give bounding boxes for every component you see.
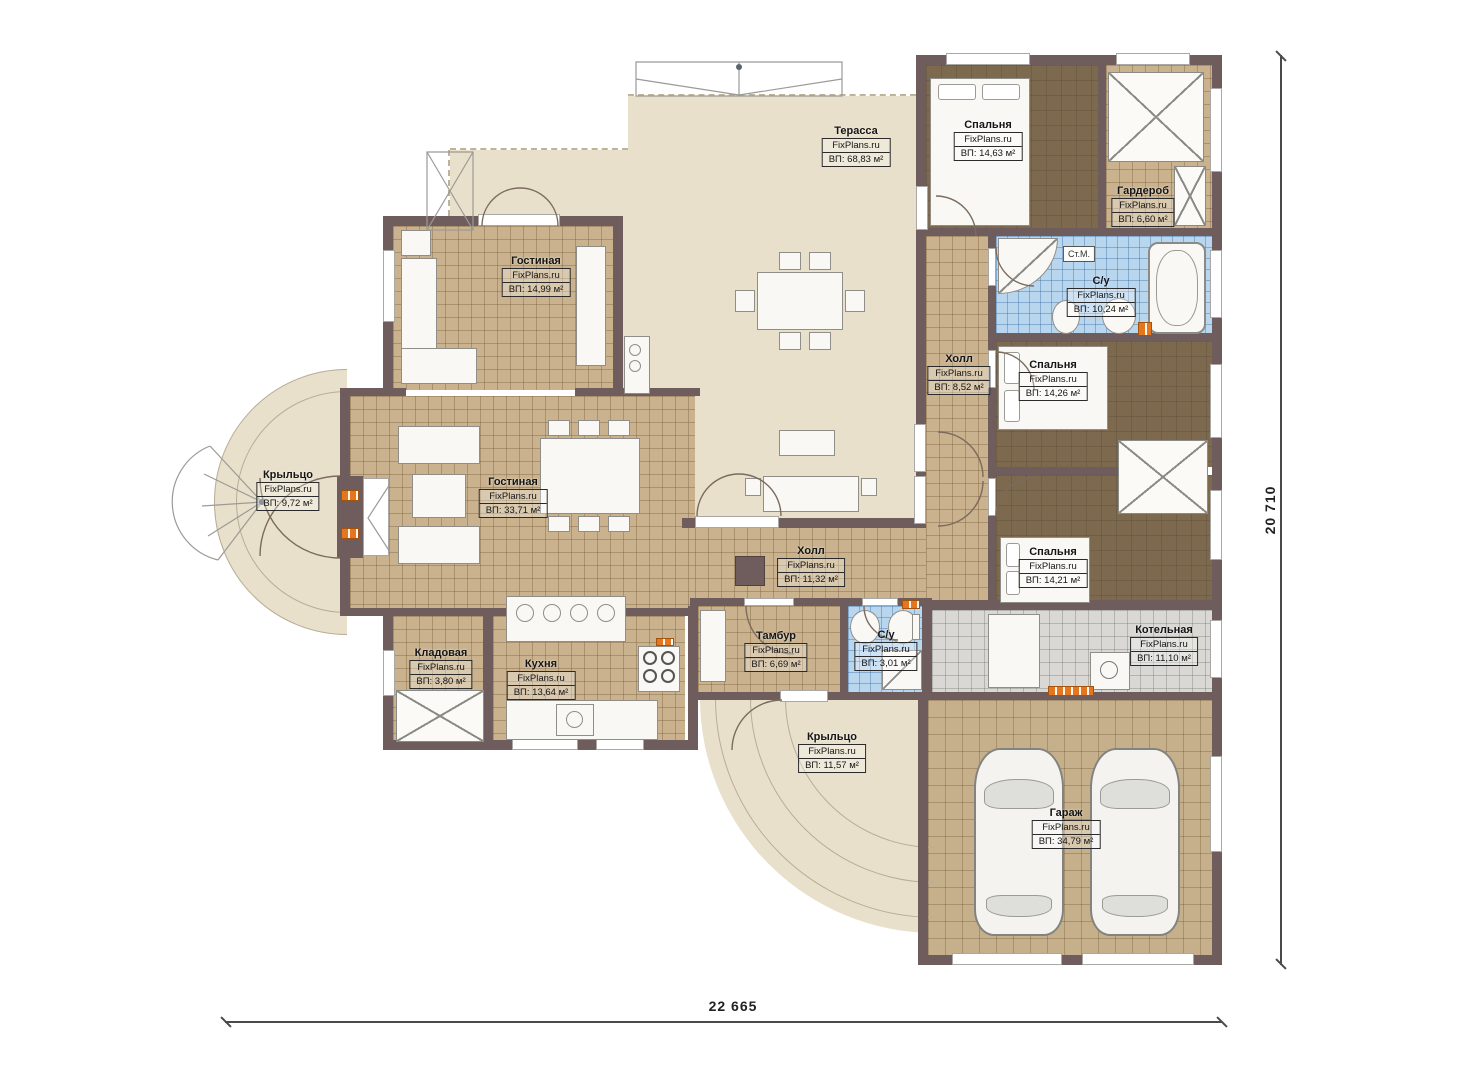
room-area: ВП: 14,26 м²	[1020, 387, 1087, 400]
chair-icon	[809, 332, 831, 350]
window	[1210, 364, 1222, 438]
radiator-icon	[1048, 686, 1094, 696]
door-sill	[914, 424, 926, 472]
dining-table-icon	[540, 438, 640, 514]
window	[383, 250, 395, 322]
washing-machine-label: Ст.М.	[1063, 246, 1095, 262]
wall-segment	[996, 333, 1212, 341]
burner-icon	[661, 669, 675, 683]
cabinet-icon	[576, 246, 606, 366]
pillow-icon	[982, 84, 1020, 100]
room-name: Холл	[777, 545, 845, 557]
room-name: Спальня	[1019, 546, 1088, 558]
wall-segment	[926, 228, 1212, 236]
side-table-icon	[745, 478, 761, 496]
stool-icon	[543, 604, 561, 622]
watermark: FixPlans.ru	[855, 643, 916, 657]
dimension-width-label: 22 665	[709, 998, 758, 1014]
room-label-bedroom-2: Спальня FixPlans.ru ВП: 14,26 м²	[1019, 359, 1088, 401]
room-info-box: FixPlans.ru ВП: 14,63 м²	[954, 132, 1023, 161]
room-area: ВП: 11,10 м²	[1131, 652, 1197, 665]
room-info-box: FixPlans.ru ВП: 11,57 м²	[798, 744, 866, 773]
wardrobe-icon	[1108, 72, 1204, 162]
watermark: FixPlans.ru	[1131, 638, 1197, 652]
chair-icon	[578, 516, 600, 532]
sofa-icon	[401, 348, 477, 384]
wall-segment	[988, 236, 996, 606]
room-area: ВП: 9,72 м²	[257, 497, 318, 510]
chair-icon	[578, 420, 600, 436]
room-label-hall-corridor: Холл FixPlans.ru ВП: 11,32 м²	[777, 545, 845, 587]
window	[1210, 490, 1222, 560]
chair-icon	[735, 290, 755, 312]
floor-plan: Терасса FixPlans.ru ВП: 68,83 м² Спальня…	[0, 0, 1474, 1080]
door-sill	[695, 516, 779, 528]
room-label-kitchen: Кухня FixPlans.ru ВП: 13,64 м²	[507, 658, 576, 700]
window	[1210, 250, 1222, 318]
door-sill	[916, 186, 928, 230]
wall-segment	[340, 556, 350, 616]
room-name: Крыльцо	[256, 469, 319, 481]
sofa-icon	[398, 526, 480, 564]
room-label-living-small: Гостиная FixPlans.ru ВП: 14,99 м²	[502, 255, 571, 297]
room-name: С/у	[1067, 275, 1136, 287]
radiator-icon	[656, 638, 674, 646]
radiator-icon	[341, 490, 359, 501]
room-label-boiler: Котельная FixPlans.ru ВП: 11,10 м²	[1130, 624, 1198, 666]
wall-segment	[1098, 65, 1106, 228]
window	[1210, 620, 1222, 678]
watermark: FixPlans.ru	[1020, 560, 1087, 574]
radiator-icon	[341, 528, 359, 539]
room-label-wc-small: С/у FixPlans.ru ВП: 3,01 м²	[854, 629, 917, 671]
sink-icon	[629, 344, 641, 356]
watermark: FixPlans.ru	[778, 559, 844, 573]
dining-table-icon	[757, 272, 843, 330]
terrace-edge	[448, 150, 450, 226]
wall-segment	[918, 700, 928, 965]
watermark: FixPlans.ru	[1068, 289, 1135, 303]
room-label-garage: Гараж FixPlans.ru ВП: 34,79 м²	[1032, 807, 1101, 849]
door-sill	[988, 478, 996, 516]
room-name: Гараж	[1032, 807, 1101, 819]
room-area: ВП: 3,01 м²	[855, 657, 916, 670]
room-info-box: FixPlans.ru ВП: 13,64 м²	[507, 671, 576, 700]
room-label-bedroom-3: Спальня FixPlans.ru ВП: 14,21 м²	[1019, 546, 1088, 588]
room-name: Тамбур	[744, 630, 807, 642]
dimension-line-vertical	[1280, 55, 1282, 965]
wall-segment	[340, 388, 350, 483]
watermark: FixPlans.ru	[745, 644, 806, 658]
wall-segment	[922, 598, 932, 700]
watermark: FixPlans.ru	[410, 661, 471, 675]
dimension-height-label: 20 710	[1262, 486, 1278, 535]
watermark: FixPlans.ru	[955, 133, 1022, 147]
watermark: FixPlans.ru	[1033, 821, 1100, 835]
stool-icon	[516, 604, 534, 622]
room-info-box: FixPlans.ru ВП: 10,24 м²	[1067, 288, 1136, 317]
room-name: Кладовая	[409, 647, 472, 659]
chair-icon	[779, 252, 801, 270]
chair-icon	[548, 516, 570, 532]
watermark: FixPlans.ru	[508, 672, 575, 686]
pillow-icon	[1004, 390, 1020, 422]
room-name: С/у	[854, 629, 917, 641]
wardrobe-icon	[1118, 440, 1208, 514]
door-sill	[478, 214, 560, 226]
room-label-storage: Кладовая FixPlans.ru ВП: 3,80 м²	[409, 647, 472, 689]
burner-icon	[643, 669, 657, 683]
watermark: FixPlans.ru	[503, 269, 570, 283]
room-label-porch-bottom: Крыльцо FixPlans.ru ВП: 11,57 м²	[798, 731, 866, 773]
wall-segment	[483, 616, 493, 740]
chair-icon	[608, 516, 630, 532]
coffee-table-icon	[779, 430, 835, 456]
room-info-box: FixPlans.ru ВП: 11,10 м²	[1130, 637, 1198, 666]
radiator-icon	[902, 600, 920, 609]
side-table-icon	[861, 478, 877, 496]
room-label-bedroom-1: Спальня FixPlans.ru ВП: 14,63 м²	[954, 119, 1023, 161]
room-name: Холл	[927, 353, 990, 365]
boiler-dial-icon	[1100, 661, 1118, 679]
dimension-line-horizontal	[225, 1021, 1222, 1023]
room-area: ВП: 13,64 м²	[508, 686, 575, 699]
room-name: Гардероб	[1111, 185, 1174, 197]
room-area: ВП: 10,24 м²	[1068, 303, 1135, 316]
room-area: ВП: 14,99 м²	[503, 283, 570, 296]
room-info-box: FixPlans.ru ВП: 14,21 м²	[1019, 559, 1088, 588]
room-label-terrace: Терасса FixPlans.ru ВП: 68,83 м²	[822, 125, 891, 167]
burner-icon	[661, 651, 675, 665]
coffee-table-icon	[412, 474, 466, 518]
room-info-box: FixPlans.ru ВП: 6,60 м²	[1111, 198, 1174, 227]
pillow-icon	[938, 84, 976, 100]
door-sill	[862, 598, 898, 606]
window	[1210, 88, 1222, 172]
watermark: FixPlans.ru	[799, 745, 865, 759]
bay-window	[363, 478, 389, 556]
watermark: FixPlans.ru	[1020, 373, 1087, 387]
door-sill	[744, 598, 794, 606]
room-info-box: FixPlans.ru ВП: 6,69 м²	[744, 643, 807, 672]
room-info-box: FixPlans.ru ВП: 11,32 м²	[777, 558, 845, 587]
wall-segment	[688, 606, 698, 750]
room-info-box: FixPlans.ru ВП: 68,83 м²	[822, 138, 891, 167]
entry-door-sill	[780, 690, 828, 702]
room-name: Спальня	[954, 119, 1023, 131]
room-label-living-main: Гостиная FixPlans.ru ВП: 33,71 м²	[479, 476, 548, 518]
room-name: Гостиная	[502, 255, 571, 267]
room-info-box: FixPlans.ru ВП: 14,26 м²	[1019, 372, 1088, 401]
watermark: FixPlans.ru	[257, 483, 318, 497]
room-info-box: FixPlans.ru ВП: 33,71 м²	[479, 489, 548, 518]
sofa-icon	[763, 476, 859, 512]
chair-icon	[608, 420, 630, 436]
room-label-bathroom: С/у FixPlans.ru ВП: 10,24 м²	[1067, 275, 1136, 317]
room-label-porch-left: Крыльцо FixPlans.ru ВП: 9,72 м²	[256, 469, 319, 511]
burner-icon	[643, 651, 657, 665]
room-info-box: FixPlans.ru ВП: 34,79 м²	[1032, 820, 1101, 849]
cabinet-icon	[988, 614, 1040, 688]
watermark: FixPlans.ru	[823, 139, 890, 153]
wall-segment	[778, 518, 926, 528]
watermark: FixPlans.ru	[1112, 199, 1173, 213]
room-info-box: FixPlans.ru ВП: 9,72 м²	[256, 482, 319, 511]
garage-door	[952, 953, 1062, 965]
room-area: ВП: 11,32 м²	[778, 573, 844, 586]
terrace-edge	[450, 148, 628, 150]
closet-icon	[700, 610, 726, 682]
room-area: ВП: 3,80 м²	[410, 675, 471, 688]
car-icon	[1090, 748, 1180, 936]
sofa-icon	[401, 258, 437, 354]
room-area: ВП: 8,52 м²	[928, 381, 989, 394]
bathtub-icon	[1148, 242, 1206, 334]
window	[1210, 756, 1222, 852]
room-area: ВП: 6,60 м²	[1112, 213, 1173, 226]
room-name: Котельная	[1130, 624, 1198, 636]
door-sill	[914, 476, 926, 524]
porch-door-post	[337, 476, 363, 558]
garage-door	[1082, 953, 1194, 965]
room-area: ВП: 34,79 м²	[1033, 835, 1100, 848]
sofa-icon	[398, 426, 480, 464]
window	[946, 53, 1030, 65]
room-area: ВП: 68,83 м²	[823, 153, 890, 166]
room-label-hall-vertical: Холл FixPlans.ru ВП: 8,52 м²	[927, 353, 990, 395]
room-name: Крыльцо	[798, 731, 866, 743]
room-area: ВП: 33,71 м²	[480, 504, 547, 517]
wall-segment	[613, 216, 623, 396]
side-table-icon	[401, 230, 431, 256]
wall-segment	[996, 467, 1118, 475]
room-name: Терасса	[822, 125, 891, 137]
chair-icon	[809, 252, 831, 270]
chair-icon	[845, 290, 865, 312]
room-area: ВП: 14,63 м²	[955, 147, 1022, 160]
stool-icon	[597, 604, 615, 622]
room-info-box: FixPlans.ru ВП: 14,99 м²	[502, 268, 571, 297]
wardrobe-icon	[1174, 166, 1206, 226]
room-area: ВП: 11,57 м²	[799, 759, 865, 772]
room-area: ВП: 6,69 м²	[745, 658, 806, 671]
stool-icon	[570, 604, 588, 622]
room-name: Гостиная	[479, 476, 548, 488]
shelving-icon	[396, 690, 484, 742]
chair-icon	[548, 420, 570, 436]
wall-segment	[690, 692, 780, 700]
door-sill	[988, 248, 996, 286]
chair-icon	[779, 332, 801, 350]
wall-segment	[840, 598, 848, 700]
room-info-box: FixPlans.ru ВП: 3,80 м²	[409, 660, 472, 689]
floor-hall-vertical	[926, 236, 988, 606]
window	[1116, 53, 1190, 65]
sink-icon	[629, 360, 641, 372]
room-name: Спальня	[1019, 359, 1088, 371]
room-label-wardrobe: Гардероб FixPlans.ru ВП: 6,60 м²	[1111, 185, 1174, 227]
terrace-edge	[628, 94, 916, 96]
radiator-icon	[1138, 322, 1152, 336]
wall-segment	[828, 692, 922, 700]
pillow-icon	[1004, 352, 1020, 384]
room-info-box: FixPlans.ru ВП: 3,01 м²	[854, 642, 917, 671]
watermark: FixPlans.ru	[480, 490, 547, 504]
room-name: Кухня	[507, 658, 576, 670]
watermark: FixPlans.ru	[928, 367, 989, 381]
window	[383, 650, 395, 696]
room-area: ВП: 14,21 м²	[1020, 574, 1087, 587]
room-info-box: FixPlans.ru ВП: 8,52 м²	[927, 366, 990, 395]
grill-icon	[735, 556, 765, 586]
sink-icon	[566, 711, 583, 728]
room-label-vestibule: Тамбур FixPlans.ru ВП: 6,69 м²	[744, 630, 807, 672]
